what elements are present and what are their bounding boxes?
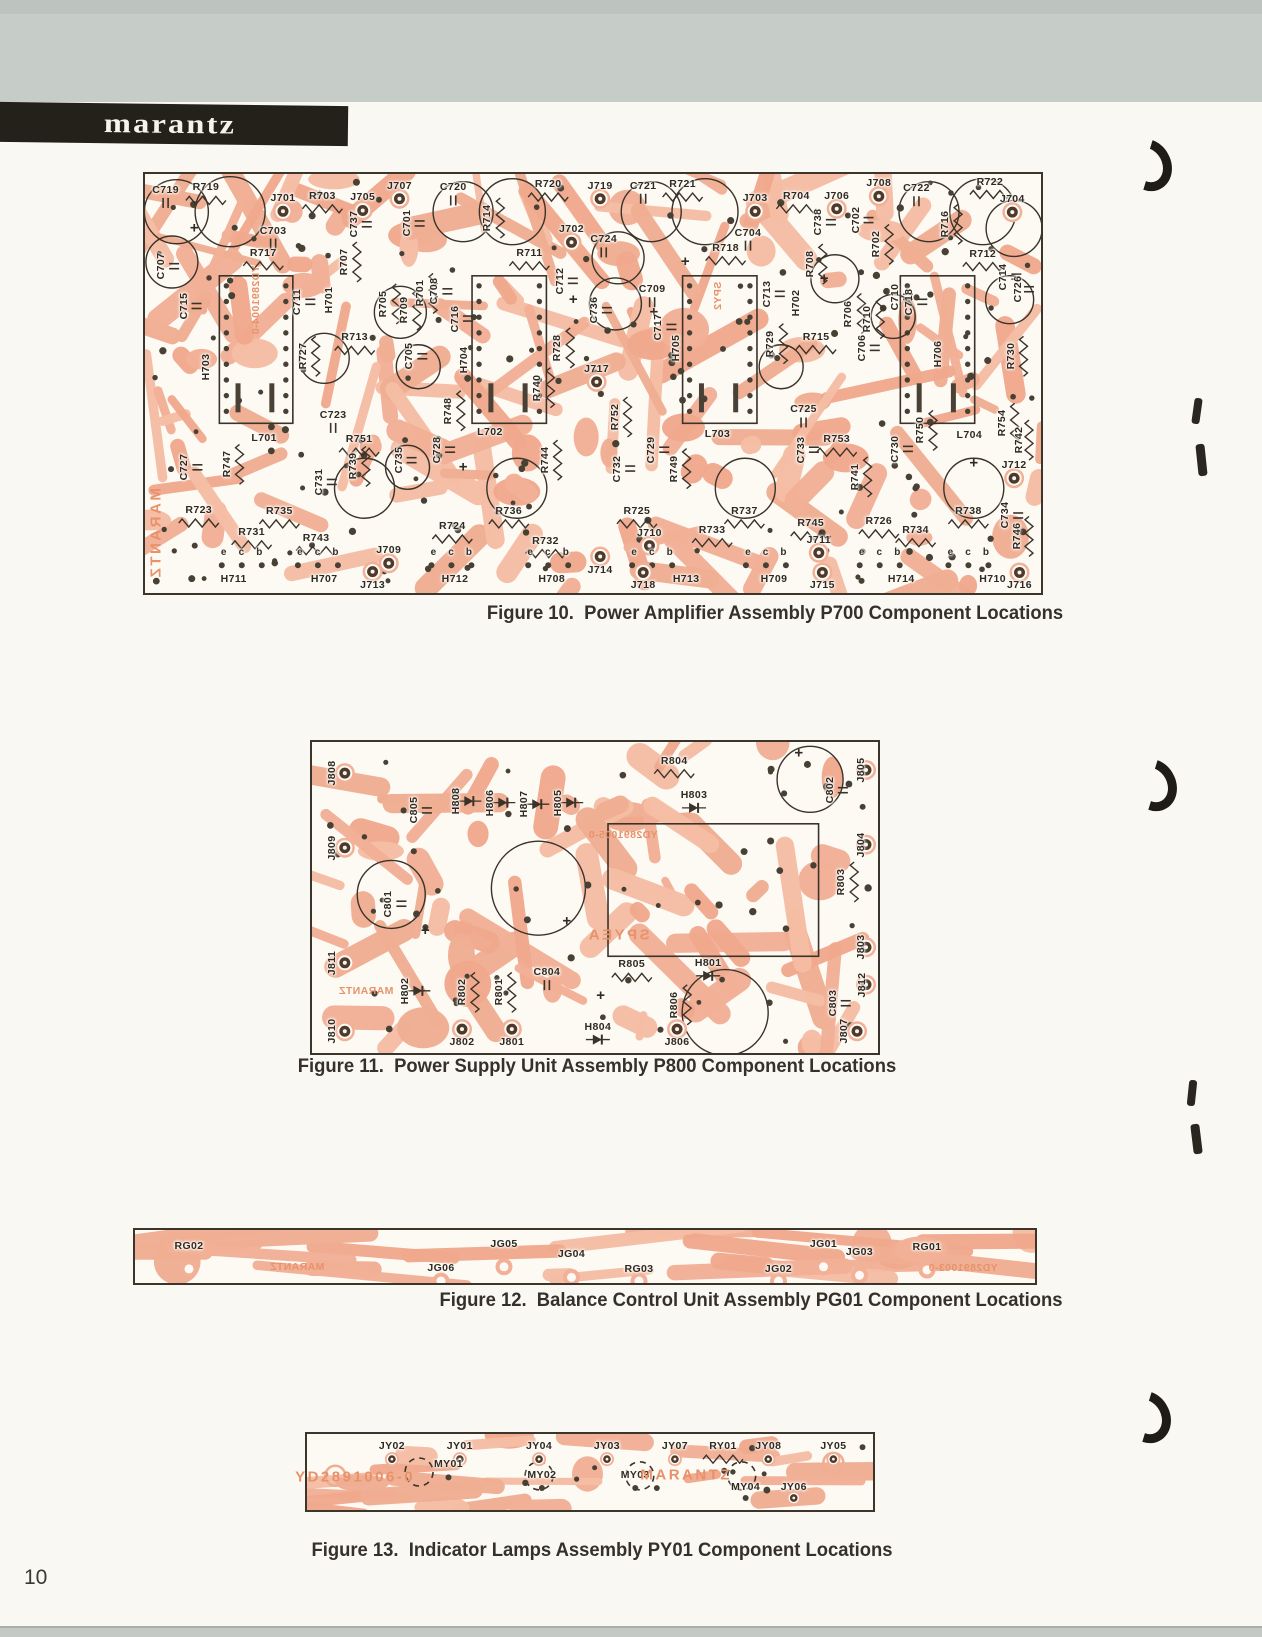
board-silkscreen-text: MARANTZ xyxy=(270,1262,325,1273)
page-bottom-edge xyxy=(0,1626,1262,1637)
component-label: H804 xyxy=(584,1021,611,1032)
component-label: JG02 xyxy=(765,1264,792,1275)
figure-12-pcb: RG02JG05JG04JG06RG03JG01JG03JG02RG01MARA… xyxy=(133,1228,1037,1285)
component-label: JY03 xyxy=(594,1441,620,1452)
component-label: R726 xyxy=(865,516,892,527)
component-label: R710 xyxy=(862,305,873,332)
component-label: R702 xyxy=(871,231,882,258)
component-label: H706 xyxy=(933,341,944,368)
component-label: J717 xyxy=(584,364,609,375)
component-label: R705 xyxy=(378,291,389,318)
component-label: e c b xyxy=(745,548,787,558)
component-label: R731 xyxy=(238,527,265,538)
component-label: R806 xyxy=(669,991,680,1018)
component-label: H709 xyxy=(761,574,788,585)
component-label: R724 xyxy=(439,521,466,532)
component-label: H806 xyxy=(485,789,496,816)
component-label: J804 xyxy=(856,832,867,857)
component-label: H712 xyxy=(442,574,469,585)
component-label: JY01 xyxy=(447,1441,473,1452)
component-label: R714 xyxy=(482,205,493,232)
component-label: C802 xyxy=(825,777,836,804)
component-label: J801 xyxy=(499,1037,524,1048)
component-label: J701 xyxy=(270,193,295,204)
component-label: H708 xyxy=(538,574,565,585)
component-label: R733 xyxy=(699,524,726,535)
component-label: R716 xyxy=(940,211,951,238)
svg-text:+: + xyxy=(569,291,578,308)
component-label: R718 xyxy=(712,242,739,253)
component-label: MY01 xyxy=(434,1459,463,1470)
component-label: J708 xyxy=(866,178,891,189)
component-label: C709 xyxy=(639,284,666,295)
component-label: R711 xyxy=(516,248,542,259)
component-label: R723 xyxy=(185,505,212,516)
svg-text:+: + xyxy=(562,912,571,929)
component-label: C725 xyxy=(790,404,817,415)
component-label: C712 xyxy=(555,267,566,294)
component-label: C729 xyxy=(646,436,657,463)
binder-hole-bottom xyxy=(1114,1382,1180,1451)
component-label: J803 xyxy=(856,935,867,960)
component-label: RG01 xyxy=(912,1242,941,1253)
component-label: C714 xyxy=(998,263,1009,290)
component-label: L704 xyxy=(957,429,983,440)
component-label: R725 xyxy=(624,506,651,517)
component-label: R713 xyxy=(341,332,368,343)
component-label: R805 xyxy=(618,959,645,970)
board-silkscreen-text: MARANTZ xyxy=(640,1468,732,1483)
component-label: R802 xyxy=(457,979,468,1006)
component-label: JG01 xyxy=(810,1239,837,1250)
svg-text:+: + xyxy=(459,458,468,475)
component-label: R717 xyxy=(250,248,277,259)
component-label: R739 xyxy=(348,453,359,480)
figure-10-pcb: ++++++++C719R719J701R703J705J707C720R714… xyxy=(143,172,1043,595)
scan-mark xyxy=(1195,444,1207,477)
component-label: JY02 xyxy=(379,1441,405,1452)
component-label: JG06 xyxy=(427,1263,454,1274)
component-label: e c b xyxy=(631,548,673,558)
binder-hole-top xyxy=(1115,130,1181,199)
component-label: C804 xyxy=(534,967,561,978)
figure-13-pcb: JY02JY01JY04JY03JY07RY01JY08JY05MY01MY02… xyxy=(305,1432,875,1512)
component-label: H805 xyxy=(553,789,564,816)
component-label: e c b xyxy=(431,548,473,558)
component-label: R738 xyxy=(955,506,982,517)
component-label: H713 xyxy=(673,574,700,585)
component-label: R729 xyxy=(765,330,776,357)
component-label: R746 xyxy=(1012,523,1023,550)
scan-mark xyxy=(1187,1080,1198,1107)
component-label: C710 xyxy=(890,283,901,310)
component-label: R701 xyxy=(415,280,426,307)
component-label: H808 xyxy=(451,788,462,815)
component-label: C713 xyxy=(762,280,773,307)
figure-10-caption: Figure 10. Power Amplifier Assembly P700… xyxy=(487,603,1063,625)
component-label: C715 xyxy=(178,293,189,320)
component-label: J706 xyxy=(824,191,849,202)
component-label: R730 xyxy=(1005,343,1016,370)
component-label: H803 xyxy=(681,790,708,801)
component-label: e c b xyxy=(859,548,901,558)
component-label: R745 xyxy=(797,518,824,529)
component-label: JY07 xyxy=(662,1441,688,1452)
component-label: R748 xyxy=(443,397,454,424)
component-label: C702 xyxy=(850,207,861,234)
component-label: C801 xyxy=(383,890,394,917)
component-label: R747 xyxy=(221,451,232,478)
component-label: J707 xyxy=(387,180,412,191)
component-label: H701 xyxy=(323,286,334,313)
component-label: e c b xyxy=(527,548,569,558)
board-silkscreen-text: YD2891003-0 xyxy=(928,1263,997,1274)
component-label: C726 xyxy=(1012,276,1023,303)
component-label: R754 xyxy=(996,410,1007,437)
component-label: MY04 xyxy=(731,1482,760,1493)
component-label: R720 xyxy=(535,179,562,190)
scan-mark xyxy=(1191,398,1203,425)
component-label: R715 xyxy=(803,331,830,342)
component-label: C727 xyxy=(179,454,190,481)
component-label: C732 xyxy=(612,455,623,482)
component-label: R734 xyxy=(902,524,929,535)
svg-text:+: + xyxy=(681,253,690,270)
figure-11-caption: Figure 11. Power Supply Unit Assembly P8… xyxy=(298,1056,896,1078)
component-label: C721 xyxy=(630,180,657,191)
component-label: R732 xyxy=(532,535,559,546)
board-silkscreen-text: YD2891006-0 xyxy=(295,1469,415,1484)
component-label: C706 xyxy=(857,335,868,362)
component-label: R751 xyxy=(346,434,373,445)
pcb-artwork: ++++ xyxy=(312,742,878,1053)
svg-text:+: + xyxy=(421,922,430,939)
page-number: 10 xyxy=(24,1566,47,1590)
component-label: R743 xyxy=(303,532,330,543)
component-label: C705 xyxy=(404,343,415,370)
component-label: C717 xyxy=(653,314,664,341)
component-label: C733 xyxy=(796,436,807,463)
component-label: H801 xyxy=(695,958,722,969)
component-label: JY04 xyxy=(526,1441,552,1452)
component-label: C723 xyxy=(320,410,347,421)
component-label: J711 xyxy=(807,535,831,546)
figure-11-pcb: ++++J808J809C805H808H806H807H805R804H803… xyxy=(310,740,880,1055)
component-label: R803 xyxy=(836,869,847,896)
board-silkscreen-text: YD2891005-0 xyxy=(589,830,658,841)
component-label: J809 xyxy=(327,835,338,860)
component-label: R703 xyxy=(309,191,336,202)
component-label: R740 xyxy=(532,374,543,401)
component-label: R721 xyxy=(669,179,696,190)
component-label: R704 xyxy=(783,191,810,202)
component-label: C724 xyxy=(590,234,617,245)
component-label: C730 xyxy=(890,436,901,463)
component-label: C701 xyxy=(401,210,412,237)
component-label: J812 xyxy=(857,972,868,997)
component-label: R801 xyxy=(494,979,505,1006)
component-label: J715 xyxy=(810,580,835,591)
component-label: J811 xyxy=(327,951,338,975)
manual-page: marantz ++++++++C719R719J701R703J705J707… xyxy=(0,0,1262,1637)
component-label: R753 xyxy=(823,434,850,445)
component-label: C803 xyxy=(827,990,838,1017)
component-label: H711 xyxy=(221,574,247,585)
component-label: L701 xyxy=(251,433,277,444)
component-label: J705 xyxy=(350,192,375,203)
binder-hole-middle xyxy=(1120,750,1186,819)
svg-text:+: + xyxy=(596,987,605,1004)
component-label: RY01 xyxy=(709,1441,736,1452)
component-label: C736 xyxy=(589,297,600,324)
component-label: H702 xyxy=(791,290,802,317)
component-label: J713 xyxy=(360,579,385,590)
figure-13-caption: Figure 13. Indicator Lamps Assembly PY01… xyxy=(311,1540,892,1562)
svg-text:+: + xyxy=(794,745,803,762)
component-label: R706 xyxy=(843,300,854,327)
component-label: e c b xyxy=(948,548,990,558)
component-label: RG03 xyxy=(624,1264,653,1275)
component-label: e c b xyxy=(221,548,263,558)
component-label: R804 xyxy=(661,755,688,766)
component-label: R719 xyxy=(193,182,220,193)
board-silkscreen-text: YD2891004-0 xyxy=(251,265,262,334)
component-label: R737 xyxy=(731,506,758,517)
component-label: C711 xyxy=(292,289,303,315)
component-label: C722 xyxy=(903,183,930,194)
component-label: H807 xyxy=(519,791,530,818)
component-label: J810 xyxy=(327,1019,338,1044)
component-label: C728 xyxy=(432,436,443,463)
component-label: H802 xyxy=(400,977,411,1004)
component-label: J712 xyxy=(1002,460,1027,471)
component-label: H705 xyxy=(671,335,682,362)
component-label: J702 xyxy=(559,224,584,235)
component-label: C737 xyxy=(349,211,360,238)
component-label: C738 xyxy=(813,209,824,236)
component-label: R736 xyxy=(495,506,522,517)
figure-12-caption: Figure 12. Balance Control Unit Assembly… xyxy=(440,1290,1063,1312)
component-label: J719 xyxy=(588,180,613,191)
component-label: C716 xyxy=(450,305,461,332)
board-silkscreen-text: MARANTZ xyxy=(338,986,393,997)
scan-mark xyxy=(1190,1124,1203,1155)
component-label: C707 xyxy=(156,253,167,280)
component-label: H703 xyxy=(201,353,212,380)
marantz-logo: marantz xyxy=(104,107,237,140)
component-label: J806 xyxy=(665,1037,690,1048)
svg-text:+: + xyxy=(969,454,978,471)
component-label: JY05 xyxy=(820,1441,846,1452)
component-label: J807 xyxy=(839,1019,850,1044)
component-label: J716 xyxy=(1007,580,1032,591)
component-label: MY02 xyxy=(527,1470,556,1481)
component-label: J710 xyxy=(637,527,662,538)
component-label: H704 xyxy=(459,347,470,374)
board-silkscreen-text: SPYEA xyxy=(586,927,649,942)
component-label: JG04 xyxy=(558,1249,585,1260)
component-label: C704 xyxy=(735,227,762,238)
component-label: H710 xyxy=(979,574,1006,585)
component-label: JY06 xyxy=(781,1482,807,1493)
component-label: H707 xyxy=(311,574,338,585)
svg-text:+: + xyxy=(190,220,199,237)
component-label: R709 xyxy=(399,297,410,324)
component-label: JG03 xyxy=(846,1247,873,1258)
component-label: JY08 xyxy=(755,1441,781,1452)
component-label: R707 xyxy=(339,249,350,276)
component-label: R750 xyxy=(915,417,926,444)
page-top-edge xyxy=(0,0,1262,102)
component-label: J718 xyxy=(631,580,656,591)
component-label: R722 xyxy=(977,176,1004,187)
component-label: R708 xyxy=(805,251,816,278)
component-label: R744 xyxy=(539,447,550,474)
component-label: R741 xyxy=(849,464,860,491)
component-label: L703 xyxy=(705,429,731,440)
component-label: J805 xyxy=(856,758,867,783)
component-label: JG05 xyxy=(490,1239,517,1250)
component-label: C735 xyxy=(393,447,404,474)
component-label: R752 xyxy=(609,404,620,431)
component-label: J703 xyxy=(743,193,768,204)
component-label: H714 xyxy=(888,574,915,585)
component-label: J802 xyxy=(450,1037,475,1048)
component-label: R727 xyxy=(297,343,308,370)
component-label: J808 xyxy=(327,761,338,786)
component-label: RG02 xyxy=(174,1241,203,1252)
component-label: C718 xyxy=(904,288,915,315)
component-label: J709 xyxy=(376,545,401,556)
board-silkscreen-text: SPY2 xyxy=(713,281,724,309)
component-label: R749 xyxy=(668,455,679,482)
component-label: L702 xyxy=(477,426,503,437)
component-label: C731 xyxy=(314,469,325,496)
component-label: C703 xyxy=(260,225,287,236)
component-label: e c b xyxy=(297,548,339,558)
component-label: C719 xyxy=(152,185,179,196)
component-label: C720 xyxy=(440,182,467,193)
component-label: R735 xyxy=(266,506,293,517)
board-silkscreen-text: MARANTZ xyxy=(148,489,163,581)
component-label: R742 xyxy=(1014,427,1025,454)
component-label: R712 xyxy=(969,248,996,259)
marantz-logo-bar: marantz xyxy=(0,102,348,146)
component-label: J704 xyxy=(1000,194,1025,205)
component-label: C734 xyxy=(1000,502,1011,529)
component-label: C708 xyxy=(429,278,440,305)
component-label: J714 xyxy=(588,564,613,575)
component-label: R728 xyxy=(552,335,563,362)
component-label: C805 xyxy=(409,797,420,824)
